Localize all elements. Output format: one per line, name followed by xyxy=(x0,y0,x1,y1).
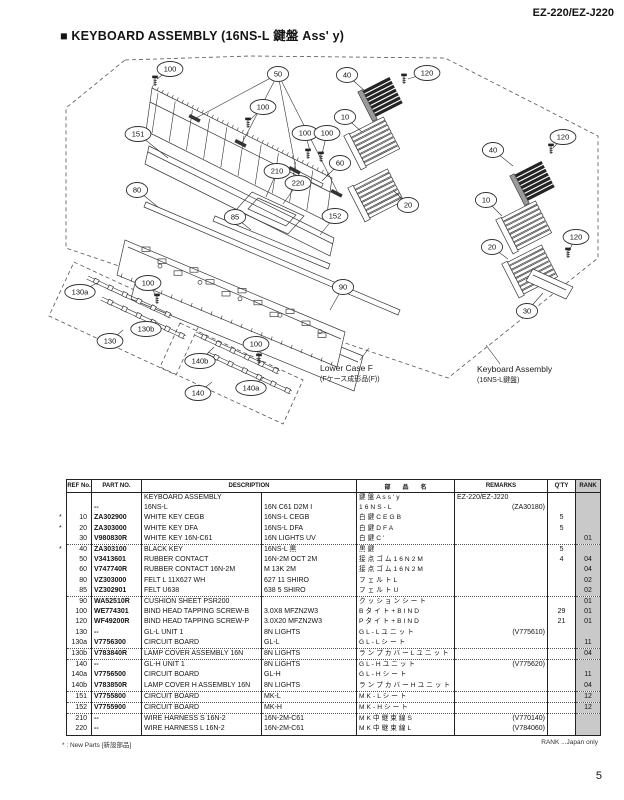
cell-qty xyxy=(548,534,576,545)
cell-desc: CUSHION SHEET PSR200 xyxy=(142,597,262,608)
cell-desc: WIRE HARNESS L 16N-2 xyxy=(142,724,262,735)
cell-spec: 3.0X8 MFZN2W3 xyxy=(262,607,357,617)
cell-remarks xyxy=(455,607,548,617)
callout-label: 140a xyxy=(243,384,261,393)
cell-remarks xyxy=(455,617,548,627)
cell-remarks xyxy=(455,555,548,565)
cell-qty: 29 xyxy=(548,607,576,617)
cell-spec: M 13K 2M xyxy=(262,565,357,575)
cell-qty xyxy=(548,586,576,597)
callout-label: 120 xyxy=(557,133,570,142)
table-row: 140aV7756500CIRCUIT BOARDGL-HG L - H シ ー… xyxy=(67,670,601,680)
cell-rank xyxy=(576,724,601,735)
white-key-cluster xyxy=(344,116,558,298)
cell-ref: 220 xyxy=(67,724,92,735)
callout-label: 100 xyxy=(142,279,155,288)
exploded-view-diagram: 1005010015110010040120106021022080851524… xyxy=(0,0,624,448)
cell-rank xyxy=(576,493,601,504)
header-part: PART NO. xyxy=(92,480,142,493)
cell-remarks xyxy=(455,691,548,702)
cell-qty: 5 xyxy=(548,545,576,556)
table-row: 20*ZA303000WHITE KEY DFA16NS-L DFA白 鍵 D … xyxy=(67,524,601,534)
cell-name: 白 鍵 C ' xyxy=(357,534,455,545)
cell-name: 接 点 ゴ ム 1 6 N 2 M xyxy=(357,555,455,565)
callout-label: 85 xyxy=(231,213,239,222)
cell-rank xyxy=(576,503,601,513)
cell-desc: LAMP COVER H ASSEMBLY 16N xyxy=(142,681,262,692)
cell-qty xyxy=(548,660,576,671)
callout-label: 100 xyxy=(257,103,270,112)
cell-remarks xyxy=(455,513,548,523)
cell-qty xyxy=(548,597,576,608)
cell-desc: CIRCUIT BOARD xyxy=(142,670,262,680)
cell-ref: 40* xyxy=(67,545,92,556)
cell-ref: 10* xyxy=(67,513,92,523)
callout-label: 220 xyxy=(292,179,305,188)
cell-name: M K - H シ ー ト xyxy=(357,703,455,714)
table-row: 220--WIRE HARNESS L 16N-216N-2M-C61M K 中… xyxy=(67,724,601,735)
cell-name: M K 中 継 束 線 S xyxy=(357,714,455,725)
cell-spec: MK-H xyxy=(262,703,357,714)
callout-label: 80 xyxy=(133,186,141,195)
cell-spec: 8N LIGHTS xyxy=(262,681,357,692)
cell-qty xyxy=(548,670,576,680)
table-row: 50V3413601RUBBER CONTACT16N-2M OCT 2M接 点… xyxy=(67,555,601,565)
cell-remarks xyxy=(455,565,548,575)
cell-rank: 02 xyxy=(576,586,601,597)
new-part-star: * xyxy=(59,545,62,555)
cell-rank: 01 xyxy=(576,607,601,617)
cell-ref: 20* xyxy=(67,524,92,534)
table-header-row: REF No. PART NO. DESCRIPTION 部 品 名 REMAR… xyxy=(67,480,601,493)
cell-name: 1 6 N S - L xyxy=(357,503,455,513)
cell-spec xyxy=(262,493,357,504)
page-number: 5 xyxy=(596,770,602,782)
diagram-labels: Lower Case F (Fケース成形品(F)) Keyboard Assem… xyxy=(320,345,553,384)
cell-part: VZ302901 xyxy=(92,586,142,597)
cell-spec: 8N LIGHTS xyxy=(262,628,357,638)
cell-qty xyxy=(548,714,576,725)
cell-part: -- xyxy=(92,503,142,513)
cell-ref: 80 xyxy=(67,576,92,586)
table-row: 210--WIRE HARNESS S 16N-216N-2M-C61M K 中… xyxy=(67,714,601,725)
cell-part: VZ303000 xyxy=(92,576,142,586)
cell-remarks: (V775610) xyxy=(455,628,548,638)
table-row: 140--GL-H UNIT 18N LIGHTSG L - H ユ ニ ッ ト… xyxy=(67,660,601,671)
cell-remarks xyxy=(455,576,548,586)
cell-desc: KEYBOARD ASSEMBLY xyxy=(142,493,262,504)
table-row: KEYBOARD ASSEMBLY鍵 盤 A s s ' yEZ-220/EZ-… xyxy=(67,493,601,504)
callout-label: 130 xyxy=(104,337,117,346)
cell-desc: RUBBER CONTACT 16N-2M xyxy=(142,565,262,575)
cell-desc: RUBBER CONTACT xyxy=(142,555,262,565)
callout-label: 152 xyxy=(329,212,342,221)
callout-label: 140b xyxy=(192,357,209,366)
cell-ref: 90 xyxy=(67,597,92,608)
cell-rank: 01 xyxy=(576,597,601,608)
cell-remarks xyxy=(455,681,548,692)
header-remarks: REMARKS xyxy=(455,480,548,493)
cell-part: V7755800 xyxy=(92,691,142,702)
cell-qty xyxy=(548,493,576,504)
callout-label: 210 xyxy=(271,167,284,176)
cell-part: V7755900 xyxy=(92,703,142,714)
cell-part: WF49200R xyxy=(92,617,142,627)
table-row: 40*ZA303100BLACK KEY16NS-L 黒黒 鍵5 xyxy=(67,545,601,556)
cell-ref: 152 xyxy=(67,703,92,714)
table-row: --16NS-L16N C61 D2M I1 6 N S - L(ZA30180… xyxy=(67,503,601,513)
callout-label: 50 xyxy=(274,70,282,79)
cell-desc: 16NS-L xyxy=(142,503,262,513)
cell-desc: CIRCUIT BOARD xyxy=(142,703,262,714)
cell-part: -- xyxy=(92,724,142,735)
new-part-star: * xyxy=(59,513,62,523)
cell-ref: 120 xyxy=(67,617,92,627)
cell-ref: 60 xyxy=(67,565,92,575)
callout-label: 130b xyxy=(138,325,155,334)
cell-spec: 8N LIGHTS xyxy=(262,649,357,660)
cell-rank: 12 xyxy=(576,703,601,714)
cell-part: -- xyxy=(92,660,142,671)
cell-remarks: (ZA30180) xyxy=(455,503,548,513)
cell-remarks xyxy=(455,638,548,649)
cell-desc: CIRCUIT BOARD xyxy=(142,691,262,702)
cell-rank: 11 xyxy=(576,670,601,680)
header-rank: RANK xyxy=(576,480,601,493)
cell-qty xyxy=(548,649,576,660)
cell-ref: 85 xyxy=(67,586,92,597)
screw-icon xyxy=(319,152,324,162)
cell-part: WE774301 xyxy=(92,607,142,617)
cell-remarks xyxy=(455,545,548,556)
cell-name: G L - L シ ー ト xyxy=(357,638,455,649)
table-row: 80VZ303000FELT L 11X627 WH627 11 SHIROフ … xyxy=(67,576,601,586)
cell-qty xyxy=(548,503,576,513)
cell-qty xyxy=(548,691,576,702)
callout-label: 120 xyxy=(421,69,434,78)
cell-spec: 16N C61 D2M I xyxy=(262,503,357,513)
cell-ref: 100 xyxy=(67,607,92,617)
cell-part xyxy=(92,493,142,504)
cell-name: M K 中 継 束 線 L xyxy=(357,724,455,735)
cell-ref xyxy=(67,493,92,504)
cell-name: G L - H シ ー ト xyxy=(357,670,455,680)
callout-label: 10 xyxy=(482,196,490,205)
footnote-new-parts: * : New Parts [新設部品] xyxy=(62,739,131,749)
cell-ref: 130b xyxy=(67,649,92,660)
table-row: 100WE774301BIND HEAD TAPPING SCREW-B3.0X… xyxy=(67,607,601,617)
cell-remarks: (V770140) xyxy=(455,714,548,725)
callout-label: 90 xyxy=(339,283,347,292)
cell-rank xyxy=(576,545,601,556)
cell-remarks xyxy=(455,524,548,534)
cell-rank: 04 xyxy=(576,555,601,565)
keyboard-assembly-label: Keyboard Assembly xyxy=(477,364,553,374)
callout-label: 60 xyxy=(336,159,344,168)
cell-desc: BIND HEAD TAPPING SCREW-P xyxy=(142,617,262,627)
callout-label: 20 xyxy=(404,201,412,210)
cell-ref: 50 xyxy=(67,555,92,565)
cell-remarks xyxy=(455,670,548,680)
cell-qty xyxy=(548,565,576,575)
cell-desc: WHITE KEY 16N-C61 xyxy=(142,534,262,545)
cell-spec: MK-L xyxy=(262,691,357,702)
cell-rank xyxy=(576,714,601,725)
screw-icon xyxy=(402,74,407,84)
cell-desc: GL-H UNIT 1 xyxy=(142,660,262,671)
cell-name: B タ イ ト + B I N D xyxy=(357,607,455,617)
header-ref: REF No. xyxy=(67,480,92,493)
cell-part: V7756300 xyxy=(92,638,142,649)
table-row: 90WA52510RCUSHION SHEET PSR200ク ッ シ ョ ン … xyxy=(67,597,601,608)
lower-case-label: Lower Case F xyxy=(320,363,373,373)
cell-part: V783850R xyxy=(92,681,142,692)
cell-remarks xyxy=(455,597,548,608)
cell-desc: WHITE KEY CEGB xyxy=(142,513,262,523)
cell-ref xyxy=(67,503,92,513)
cell-desc: FELT L 11X627 WH xyxy=(142,576,262,586)
cell-part: V747740R xyxy=(92,565,142,575)
cell-ref: 210 xyxy=(67,714,92,725)
cell-desc: GL-L UNIT 1 xyxy=(142,628,262,638)
cell-desc: WHITE KEY DFA xyxy=(142,524,262,534)
cell-part: V980830R xyxy=(92,534,142,545)
cell-remarks xyxy=(455,534,548,545)
table-row: 10*ZA302900WHITE KEY CEGB16NS-L CEGB白 鍵 … xyxy=(67,513,601,523)
cell-part: -- xyxy=(92,714,142,725)
table-row: 151V7755800CIRCUIT BOARDMK-LM K - L シ ー … xyxy=(67,691,601,702)
lower-case-label-ja: (Fケース成形品(F)) xyxy=(320,374,380,383)
cell-part: V783840R xyxy=(92,649,142,660)
cell-name: P タ イ ト + B I N D xyxy=(357,617,455,627)
cell-ref: 130a xyxy=(67,638,92,649)
callout-label: 100 xyxy=(164,65,177,74)
header-description: DESCRIPTION xyxy=(142,480,357,493)
callout-label: 130a xyxy=(72,288,90,297)
cell-ref: 30 xyxy=(67,534,92,545)
header-qty: Q'TY xyxy=(548,480,576,493)
cell-spec xyxy=(262,597,357,608)
keyboard-assembly-label-ja: (16NS-L鍵盤) xyxy=(477,375,519,384)
cell-rank: 12 xyxy=(576,691,601,702)
new-part-star: * xyxy=(59,524,62,534)
cell-remarks xyxy=(455,649,548,660)
callout-label: 100 xyxy=(250,340,263,349)
cell-desc: LAMP COVER ASSEMBLY 16N xyxy=(142,649,262,660)
cell-rank: 04 xyxy=(576,565,601,575)
callout-label: 140 xyxy=(192,389,205,398)
manual-page: { "page": { "model": "EZ-220/EZ-J220", "… xyxy=(0,0,624,800)
table-row: 85VZ302901FELT U638638 5 SHIROフ ェ ル ト U0… xyxy=(67,586,601,597)
table-row: 152V7755900CIRCUIT BOARDMK-HM K - H シ ー … xyxy=(67,703,601,714)
cell-remarks: (V775620) xyxy=(455,660,548,671)
cell-part: WA52510R xyxy=(92,597,142,608)
cell-desc: FELT U638 xyxy=(142,586,262,597)
cell-spec: 627 11 SHIRO xyxy=(262,576,357,586)
cell-rank xyxy=(576,524,601,534)
cell-name: ラ ン プ カ バ ー L ユ ニ ッ ト xyxy=(357,649,455,660)
cell-rank: 01 xyxy=(576,617,601,627)
callout-label: 30 xyxy=(523,307,531,316)
cell-name: ク ッ シ ョ ン シ ー ト xyxy=(357,597,455,608)
cell-part: ZA302900 xyxy=(92,513,142,523)
cell-rank xyxy=(576,513,601,523)
cell-name: 白 鍵 C E G B xyxy=(357,513,455,523)
screw-icon xyxy=(246,118,251,128)
table-row: 130--GL-L UNIT 18N LIGHTSG L - L ユ ニ ッ ト… xyxy=(67,628,601,638)
cell-rank: 11 xyxy=(576,638,601,649)
cell-name: M K - L シ ー ト xyxy=(357,691,455,702)
cell-name: ラ ン プ カ バ ー H ユ ニ ッ ト xyxy=(357,681,455,692)
callout-label: 40 xyxy=(343,71,351,80)
cell-ref: 140b xyxy=(67,681,92,692)
header-name: 部 品 名 xyxy=(357,480,455,493)
screw-icon xyxy=(549,144,554,154)
table-row: 120WF49200RBIND HEAD TAPPING SCREW-P3.0X… xyxy=(67,617,601,627)
cell-qty xyxy=(548,724,576,735)
cell-part: ZA303100 xyxy=(92,545,142,556)
cell-name: 黒 鍵 xyxy=(357,545,455,556)
cell-name: G L - L ユ ニ ッ ト xyxy=(357,628,455,638)
table-row: 140bV783850RLAMP COVER H ASSEMBLY 16N8N … xyxy=(67,681,601,692)
cell-rank: 04 xyxy=(576,649,601,660)
cell-rank: 01 xyxy=(576,534,601,545)
cell-part: V7756500 xyxy=(92,670,142,680)
cell-name: G L - H ユ ニ ッ ト xyxy=(357,660,455,671)
cell-qty xyxy=(548,576,576,586)
cell-name: 接 点 ゴ ム 1 6 N 2 M xyxy=(357,565,455,575)
cell-spec: GL-L xyxy=(262,638,357,649)
callout-label: 151 xyxy=(132,130,145,139)
cell-qty: 21 xyxy=(548,617,576,627)
cell-spec: 16N LIGHTS UV xyxy=(262,534,357,545)
cell-spec: 16NS-L DFA xyxy=(262,524,357,534)
cell-spec: 16N-2M-C61 xyxy=(262,714,357,725)
cell-rank: 04 xyxy=(576,681,601,692)
cell-spec: 16N-2M OCT 2M xyxy=(262,555,357,565)
cell-remarks: EZ-220/EZ-J220 xyxy=(455,493,548,504)
cell-spec: 638 5 SHIRO xyxy=(262,586,357,597)
parts-table-section: REF No. PART NO. DESCRIPTION 部 品 名 REMAR… xyxy=(66,479,601,736)
table-row: 130aV7756300CIRCUIT BOARDGL-LG L - L シ ー… xyxy=(67,638,601,649)
cell-ref: 140a xyxy=(67,670,92,680)
cell-remarks: (V784060) xyxy=(455,724,548,735)
cell-qty xyxy=(548,703,576,714)
cell-part: V3413601 xyxy=(92,555,142,565)
cell-qty xyxy=(548,681,576,692)
cell-spec: 16N-2M-C61 xyxy=(262,724,357,735)
cell-qty: 5 xyxy=(548,524,576,534)
cell-remarks xyxy=(455,586,548,597)
cell-spec: 16NS-L CEGB xyxy=(262,513,357,523)
table-row: 30V980830RWHITE KEY 16N-C6116N LIGHTS UV… xyxy=(67,534,601,545)
cell-part: ZA303000 xyxy=(92,524,142,534)
cell-desc: WIRE HARNESS S 16N-2 xyxy=(142,714,262,725)
cell-rank xyxy=(576,628,601,638)
cell-ref: 140 xyxy=(67,660,92,671)
cell-desc: CIRCUIT BOARD xyxy=(142,638,262,649)
callout-label: 40 xyxy=(489,146,497,155)
callout-label: 10 xyxy=(341,113,349,122)
cell-name: 白 鍵 D F A xyxy=(357,524,455,534)
cell-name: フ ェ ル ト L xyxy=(357,576,455,586)
callout-label: 100 xyxy=(321,129,334,138)
callout-label: 120 xyxy=(570,233,583,242)
cell-name: フ ェ ル ト U xyxy=(357,586,455,597)
cell-qty: 5 xyxy=(548,513,576,523)
parts-table-body: KEYBOARD ASSEMBLY鍵 盤 A s s ' yEZ-220/EZ-… xyxy=(67,493,601,736)
cell-spec: 8N LIGHTS xyxy=(262,660,357,671)
cell-rank: 02 xyxy=(576,576,601,586)
cell-desc: BIND HEAD TAPPING SCREW-B xyxy=(142,607,262,617)
cell-remarks xyxy=(455,703,548,714)
callout-label: 20 xyxy=(488,243,496,252)
cell-ref: 130 xyxy=(67,628,92,638)
cell-spec: 3.0X20 MFZN2W3 xyxy=(262,617,357,627)
cell-qty: 4 xyxy=(548,555,576,565)
cell-desc: BLACK KEY xyxy=(142,545,262,556)
cell-ref: 151 xyxy=(67,691,92,702)
footnote-rank: RANK ...Japan only xyxy=(541,739,598,746)
cell-spec: GL-H xyxy=(262,670,357,680)
table-row: 130bV783840RLAMP COVER ASSEMBLY 16N8N LI… xyxy=(67,649,601,660)
cell-name: 鍵 盤 A s s ' y xyxy=(357,493,455,504)
cell-part: -- xyxy=(92,628,142,638)
cell-spec: 16NS-L 黒 xyxy=(262,545,357,556)
parts-table: REF No. PART NO. DESCRIPTION 部 品 名 REMAR… xyxy=(66,479,601,736)
cell-qty xyxy=(548,628,576,638)
callout-label: 100 xyxy=(299,129,312,138)
cell-qty xyxy=(548,638,576,649)
cell-rank xyxy=(576,660,601,671)
screw-icon xyxy=(153,76,158,86)
table-row: 60V747740RRUBBER CONTACT 16N-2MM 13K 2M接… xyxy=(67,565,601,575)
